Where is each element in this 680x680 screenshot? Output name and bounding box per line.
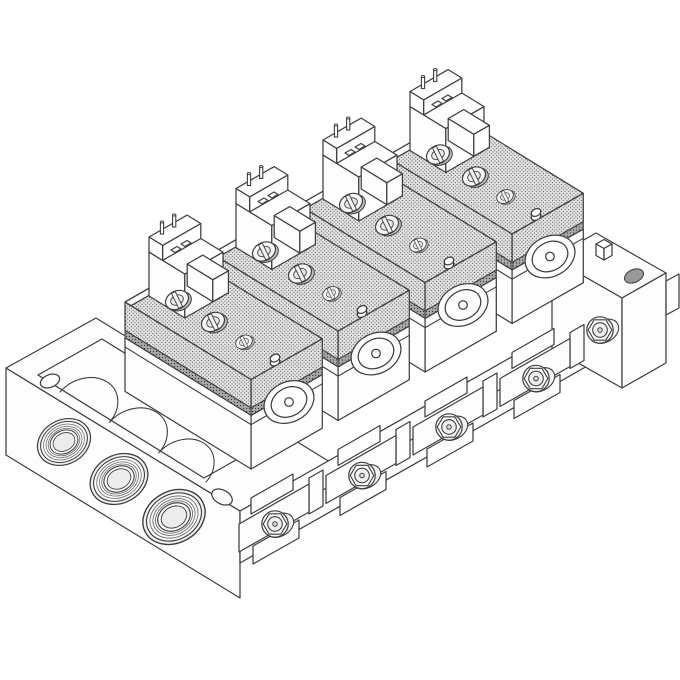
locating-peg bbox=[596, 240, 612, 261]
manifold-assembly-drawing: Four-station solenoid valve manifold ass… bbox=[0, 0, 680, 680]
technical-illustration: Four-station solenoid valve manifold ass… bbox=[0, 0, 680, 680]
